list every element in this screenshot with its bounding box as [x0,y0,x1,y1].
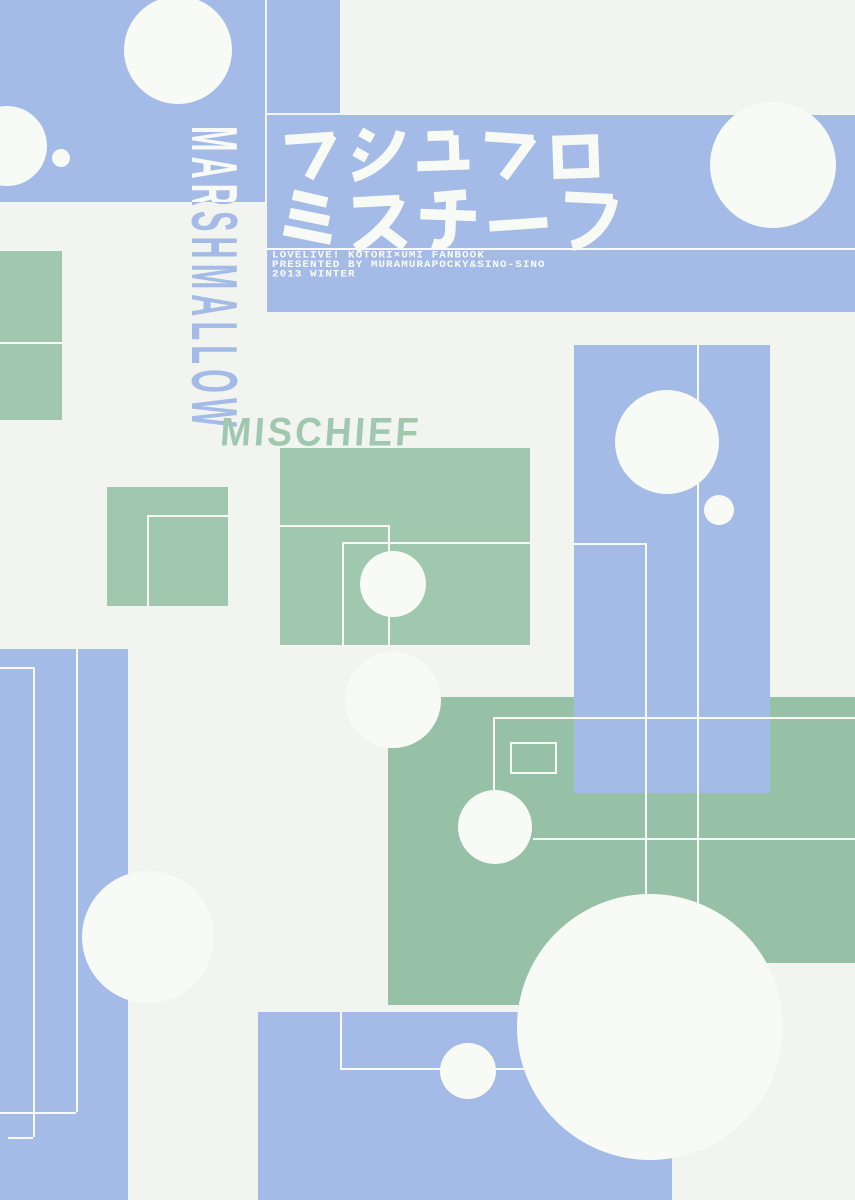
title-line-2 [275,186,625,252]
title-glyph [543,123,607,189]
title-glyph [414,185,482,253]
decor-rect-left-green [0,251,62,420]
rule-line [33,667,35,1137]
decor-rect-green-square [107,487,228,606]
rule-line [0,342,62,344]
title-glyph [274,185,342,253]
rule-line [533,838,855,840]
title-line-1 [280,121,610,185]
decor-circle [345,652,441,748]
rule-outline-rect [510,742,557,774]
rule-line [8,1137,33,1139]
title-glyph [553,184,622,253]
rule-line [340,1012,342,1068]
vertical-title-text: MARSHMALLOW [190,202,248,432]
title-glyph [344,121,409,188]
rule-line [493,717,495,792]
decor-circle [704,495,734,525]
rule-line [574,543,647,545]
rule-line [76,649,78,1112]
rule-line [342,542,530,544]
title-glyph [483,188,553,258]
decor-circle [52,149,70,167]
rule-line [0,1112,76,1114]
vertical-title-blue: MARSHMALLOW [190,202,262,442]
rule-line [147,515,149,606]
credits-block: LOVELIVE! KOTORI×UMI FANBOOK PRESENTED B… [272,251,546,280]
rule-line [342,542,344,645]
title-glyph [476,119,542,187]
rule-line [645,543,647,897]
decor-circle [124,0,232,104]
rule-line [147,515,228,517]
rule-line [493,717,855,719]
vertical-title-text: MARSHMALLOW [190,126,248,202]
doujinshi-back-cover: LOVELIVE! KOTORI×UMI FANBOOK PRESENTED B… [0,0,855,1200]
credits-line-3: 2013 WINTER [272,270,546,280]
decor-circle [82,871,214,1003]
decor-circle [440,1043,496,1099]
decor-circle [458,790,532,864]
decor-circle [615,390,719,494]
decor-circle-large [517,894,783,1160]
vertical-title-white: MARSHMALLOW [190,126,262,202]
title-glyph [278,119,344,187]
title-glyph [343,186,412,255]
title-glyph [411,120,475,186]
decor-circle [710,102,836,228]
decor-rect-top-band [267,0,340,113]
mischief-text-knockout: MISCHIEF [280,448,540,462]
decor-circle [360,551,426,617]
rule-line [0,667,33,669]
mischief-text: MISCHIEF [280,448,423,455]
decor-rect-center-green [280,448,530,645]
rule-line [280,525,389,527]
